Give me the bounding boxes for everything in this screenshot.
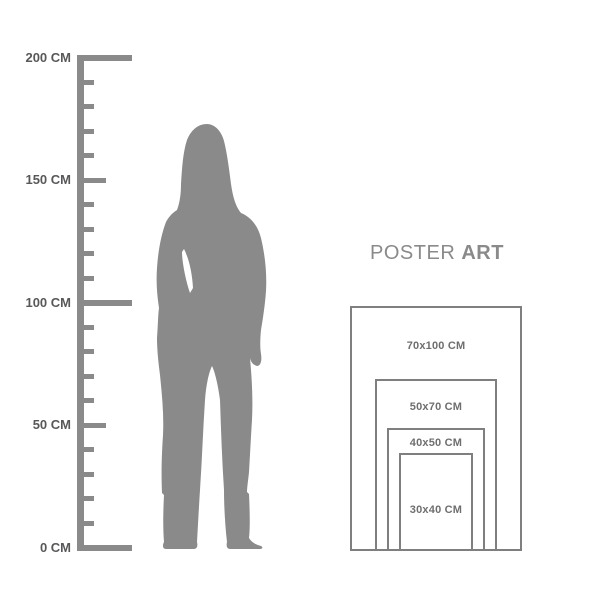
brand-name-bold: ART xyxy=(461,242,504,264)
size-guide-canvas: 200 CM150 CM100 CM50 CM0 CM POSTER ART 7… xyxy=(0,0,600,600)
brand-name-regular: POSTER xyxy=(370,242,455,264)
poster-size-label: 40x50 CM xyxy=(387,435,485,451)
poster-size-label: 50x70 CM xyxy=(375,399,498,415)
poster-size-label: 70x100 CM xyxy=(350,338,522,354)
brand-label: POSTER ART xyxy=(337,242,537,265)
poster-size-label: 30x40 CM xyxy=(399,502,473,518)
